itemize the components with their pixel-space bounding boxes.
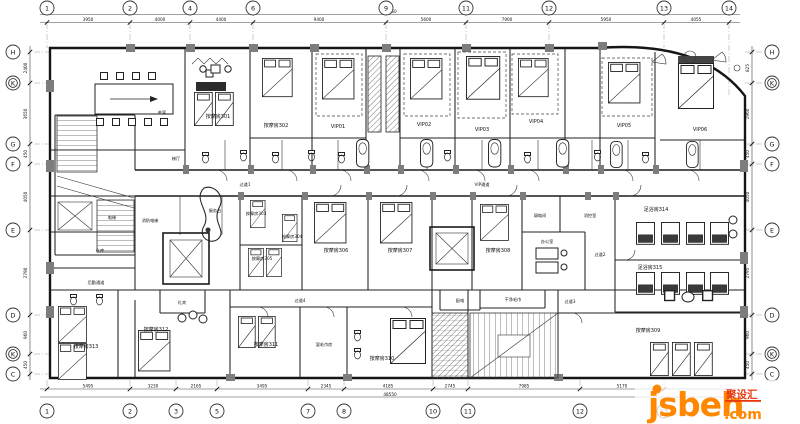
grid-label: H [11,48,16,56]
label-vip05: VIP05 [617,123,631,129]
grid-bubble: 11 [459,1,473,15]
dim-top-5: 5600 [421,17,432,22]
dim-bottom-4: 3495 [257,384,268,389]
label-vip02: VIP02 [417,122,431,128]
grid-label: 2 [128,407,132,415]
beds-top-band [194,52,714,126]
dim-right-5: 2795 [745,267,750,278]
dim-left-3: 450 [23,150,28,158]
vip-wing-shafts [368,56,399,132]
grid-bubble: K [765,347,779,361]
grid-label: E [11,226,15,234]
grid-bubble: H [6,45,20,59]
grid-bubble: G [765,137,779,151]
grid-bubble: 12 [573,404,587,418]
dim-right-7: 450 [745,361,750,369]
label-office: 办公室 [541,238,554,245]
label-service-desk: 服务台 [209,207,222,214]
dim-left-1: 2400 [23,62,28,73]
label-foot315: 足浴房315 [638,264,663,271]
dim-left-7: 450 [23,361,28,369]
label-m312: 按摩房312 [144,326,169,333]
grid-label: 7 [306,407,310,415]
grid-label: C [11,370,16,378]
grid-bubble: 2 [123,1,137,15]
grid-bubble: 11 [461,404,475,418]
grid-label: 3 [174,407,178,415]
label-m313: 按摩房313 [74,343,99,350]
grid-label: C [770,370,775,378]
dim-bottom-7: 2745 [445,384,456,389]
grid-bubble: 2 [123,404,137,418]
dim-bottom-1: 5495 [83,384,94,389]
watermark: jsbeh 聚设汇 .com [635,380,795,424]
beds-bottom-band [58,291,712,380]
label-logistics-corridor: 后勤通道 [88,279,106,286]
grid-bubble: K [765,76,779,90]
label-elevator: 电梯 [108,214,116,221]
grid-bubble: H [765,45,779,59]
grid-bubble: 1 [40,1,54,15]
dim-left-2: 3650 [23,108,28,119]
stair-hatched [432,313,468,378]
watermark-badge: 聚设汇 [725,388,758,401]
dim-left-4: 4050 [23,191,28,202]
grid-label: 13 [660,4,668,12]
dim-top-4: 9400 [314,17,325,22]
label-power: 配电 [456,297,465,304]
bath-fixtures-top [203,139,699,167]
dim-left-6: 960 [23,331,28,339]
corridor-labels: 过道1 VIP通道 过道2 过道3 过道4 后勤通道 [88,181,606,305]
label-m306: 按摩房306 [324,247,349,254]
grid-label: 14 [725,4,733,12]
lobby-art-wall [192,58,228,91]
dim-right-1: 825 [745,64,750,72]
grid-bubble: E [6,223,20,237]
grid-label: 2 [128,4,132,12]
grid-label: 11 [462,4,470,12]
grid-bubble: D [765,308,779,322]
grid-bubble: C [765,367,779,381]
dimension-left: 2400 3650 450 4050 2790 960 450 [23,46,32,380]
grid-label: 12 [545,4,553,12]
label-m302: 按摩房302 [264,122,289,129]
grid-bubble: F [6,157,20,171]
grid-label: G [11,140,16,148]
label-m311: 按摩房311 [254,341,279,348]
dim-bottom-3: 2165 [191,384,202,389]
grid-label: 11 [464,407,472,415]
label-storage: 仓库 [96,247,104,254]
label-fire-control: 消控室 [584,212,597,219]
label-tea-room: 茶室 [158,109,166,115]
grid-bubble: 14 [722,1,736,15]
grid-bubble: D [6,308,20,322]
grid-label: H [770,48,775,56]
grid-bubble: 6 [246,1,260,15]
grid-bubble: K [6,347,20,361]
dim-bottom-5: 2345 [321,384,332,389]
stair-secondary [470,313,558,378]
grid-bubble: C [6,367,20,381]
elevator-shaft-vip [430,227,474,270]
grid-label: 6 [251,4,255,12]
grid-label: 4 [188,4,192,12]
label-corridor1: 过道1 [239,181,250,188]
grid-label: D [770,311,775,319]
grid-bubble: 4 [183,1,197,15]
label-corridor3: 过道3 [564,298,575,305]
grid-bubble: 7 [301,404,315,418]
dim-right-6: 960 [745,331,750,339]
grid-bubble: E [765,223,779,237]
label-foot314: 足浴房314 [644,206,669,213]
grid-label: F [11,160,15,168]
label-vip06: VIP06 [693,127,707,133]
grid-label: 10 [429,407,437,415]
dim-top-8: 4055 [691,17,702,22]
grid-bubble: 8 [337,404,351,418]
label-lobby: 梯厅 [172,155,180,162]
label-vip04: VIP04 [529,119,543,125]
grid-label: G [770,140,775,148]
grid-label: 8 [342,407,346,415]
dim-right-2: 1960 [745,108,750,119]
label-vip03: VIP03 [475,127,489,133]
dim-top-1: 3950 [83,17,94,22]
grid-bubble: G [6,137,20,151]
dim-left-5: 2790 [23,267,28,278]
label-m309: 按摩房309 [636,327,661,334]
footbath-recliners [636,216,737,294]
label-m305: 按摩房305 [252,255,273,262]
watermark-badge-underline [725,400,761,402]
dimension-right: 825 1960 450 4050 2795 960 450 [745,46,754,380]
dim-top-3: 4400 [216,17,227,22]
label-vip01: VIP01 [331,124,345,130]
label-m304: 按摩房304 [282,233,303,240]
grid-bubble: K [6,76,20,90]
watermark-tld: .com [724,407,762,423]
grid-bubbles-top: 1 2 4 6 9 11 12 13 14 [40,1,736,15]
floor-plan-page: 茶室 梯厅 按摩房301 按摩房302 VIP01 VIP02 VIP03 VI… [0,0,800,424]
grid-bubbles-bottom: 1 2 3 5 7 8 10 11 12 13 [40,404,671,418]
grid-bubble: 10 [426,404,440,418]
grid-label: 1 [45,4,49,12]
grid-bubble: 13 [657,1,671,15]
label-m310: 按摩房310 [370,355,395,362]
grid-label: 5 [215,407,219,415]
dim-top-6: 7900 [502,17,513,22]
label-fire-elevator: 消防电梯 [142,217,159,224]
grid-bubble: 1 [40,404,54,418]
elevator-box-left [58,202,92,230]
label-corridor4: 过道4 [294,297,305,304]
grid-bubbles-right: H K G F E D K C [765,45,779,381]
dim-bottom-8: 7985 [519,384,530,389]
dim-bottom-total: 48550 [383,392,397,397]
label-concierge: 礼宾 [178,299,186,306]
label-corridor2: 过道2 [594,251,605,258]
tea-room-furniture [95,73,173,126]
dim-bottom-9: 5170 [617,384,628,389]
grid-label: D [11,311,16,319]
elevator-shaft-service [163,233,209,284]
grid-bubble: 3 [169,404,183,418]
grid-bubble: 5 [210,404,224,418]
office-furniture [536,248,567,273]
dim-top-7: 5950 [601,17,612,22]
grid-label: E [770,226,774,234]
label-m308: 按摩房308 [486,247,511,254]
dim-bottom-2: 3230 [148,384,159,389]
label-low-voltage: 弱电间 [534,212,547,219]
watermark-dot [653,385,662,394]
grid-bubble: 9 [379,1,393,15]
floor-plan-drawing: 茶室 梯厅 按摩房301 按摩房302 VIP01 VIP02 VIP03 VI… [0,0,800,424]
dim-right-4: 4050 [745,191,750,202]
grid-label: F [770,160,774,168]
label-wet-towel: 湿毛巾房 [316,341,333,348]
grid-bubbles-left: H K G F E D K C [6,45,20,381]
label-vip-corridor: VIP通道 [475,181,491,188]
label-m307: 按摩房307 [388,247,413,254]
label-m301: 按摩房301 [206,113,231,120]
grid-label: 9 [384,4,388,12]
grid-bubble: 12 [542,1,556,15]
label-m303: 按摩房303 [246,210,267,217]
label-clean-towel: 干净毛巾 [505,296,522,303]
grid-label: 1 [45,407,49,415]
dim-right-3: 450 [745,150,750,158]
grid-label: 12 [576,407,584,415]
grid-bubble: F [765,157,779,171]
dim-bottom-6: 4185 [383,384,394,389]
dim-top-2: 4000 [155,17,166,22]
